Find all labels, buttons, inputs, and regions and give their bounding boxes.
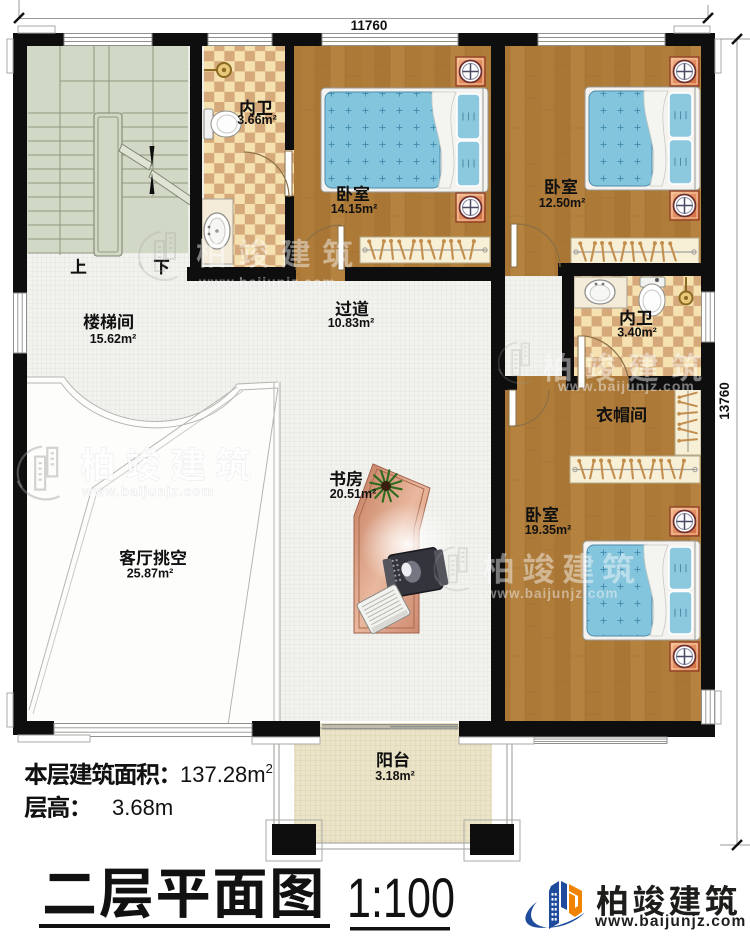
svg-text:10.83m²: 10.83m² <box>328 316 375 330</box>
svg-text:3.68m: 3.68m <box>112 795 173 820</box>
svg-text:www.baijunjz.com: www.baijunjz.com <box>198 274 336 290</box>
svg-text:19.35m²: 19.35m² <box>525 523 572 537</box>
svg-text:11760: 11760 <box>351 18 388 33</box>
svg-text:137.28m2: 137.28m2 <box>180 761 273 787</box>
svg-text:20.51m²: 20.51m² <box>330 487 377 501</box>
svg-text:www.baijunjz.com: www.baijunjz.com <box>557 378 695 394</box>
svg-text:12.50m²: 12.50m² <box>539 196 586 210</box>
svg-text:25.87m²: 25.87m² <box>127 567 174 581</box>
svg-text:13760: 13760 <box>717 382 732 420</box>
svg-text:1:100: 1:100 <box>347 866 455 929</box>
svg-text:3.40m²: 3.40m² <box>617 326 657 340</box>
svg-text:www.baijunjz.com: www.baijunjz.com <box>594 913 746 930</box>
svg-text:www.baijunjz.com: www.baijunjz.com <box>485 586 619 601</box>
svg-text:www.baijunjz.com: www.baijunjz.com <box>81 484 215 499</box>
svg-text:3.18m²: 3.18m² <box>375 769 415 783</box>
svg-text:14.15m²: 14.15m² <box>331 202 378 216</box>
svg-text:3.66m²: 3.66m² <box>237 113 277 127</box>
svg-text:15.62m²: 15.62m² <box>90 332 137 346</box>
